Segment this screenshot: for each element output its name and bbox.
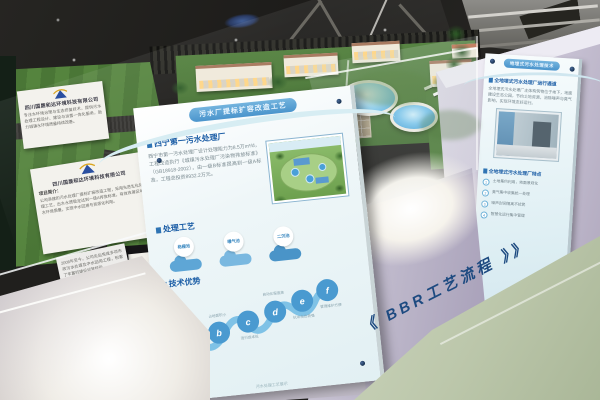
feature-label: 土地集约利用，地面景观化: [492, 179, 538, 187]
feature-label: 臭气集中收集统一处理: [492, 190, 530, 197]
screw-icon: [490, 59, 495, 64]
wave-cloud-icon: [269, 248, 302, 262]
exhibition-photo: 四川国晟和达环境科技有限公司 专注水环境治理与生态修复技术，提供污水处理工程设计…: [0, 0, 600, 400]
acrylic-edge-highlight: [476, 36, 478, 170]
step-circle: 二沉池: [272, 225, 294, 247]
rendering-trees: [269, 136, 347, 201]
process-step: 曝气池: [215, 230, 254, 268]
greenery-reflection: [352, 70, 432, 106]
feature-label: 噪声封闭隔离不扰民: [491, 201, 525, 208]
screw-icon: [336, 99, 341, 104]
corridor-scene: [496, 111, 559, 159]
svg-text:管理维护方便: 管理维护方便: [320, 302, 342, 309]
feature-row: 3 噪声封闭隔离不扰民: [481, 200, 565, 212]
section3-title: 技术优势: [168, 275, 201, 289]
wave-cloud-icon: [219, 253, 252, 267]
company-logo-icon: [53, 88, 68, 100]
greenery-reflection: [420, 110, 480, 140]
svg-text:运行成本低: 运行成本低: [240, 334, 259, 341]
svg-text:e: e: [299, 296, 305, 306]
step-circle: 曝气池: [223, 231, 245, 253]
wave-cloud-icon: [169, 258, 202, 272]
right-placard-banner: 地埋式污水处理技术: [504, 58, 561, 70]
feature-row: 1 土地集约利用，地面景观化: [482, 178, 566, 190]
section2-title: 处理工艺: [162, 221, 195, 235]
corridor-floor: [496, 144, 557, 159]
section-bullet: [156, 227, 162, 233]
corridor-photo: [493, 108, 562, 162]
screw-icon: [570, 66, 575, 71]
svg-text:占地面积小: 占地面积小: [208, 312, 227, 319]
process-step: 二沉池: [264, 225, 303, 263]
svg-text:c: c: [245, 317, 251, 327]
step-circle: 格栅池: [173, 236, 195, 258]
svg-text:自动化程度高: 自动化程度高: [262, 290, 284, 297]
screw-icon: [360, 361, 365, 366]
plant-aerial-rendering: [265, 133, 349, 205]
process-step: 格栅池: [165, 235, 204, 273]
company-card-top: 四川国晟和达环境科技有限公司 专注水环境治理与生态修复技术，提供污水处理工程设计…: [17, 81, 109, 149]
aerial-scene: [269, 136, 347, 201]
decorative-swoosh: [463, 72, 600, 99]
feature-label: 智慧化运行集中管理: [490, 212, 524, 219]
right-section2-heading: 全地埋式污水处理厂特点: [483, 167, 567, 179]
feature-row: 2 臭气集中收集统一处理: [482, 189, 566, 201]
right-section2-title: 全地埋式污水处理厂特点: [489, 168, 542, 178]
section-bullet: [483, 169, 487, 174]
